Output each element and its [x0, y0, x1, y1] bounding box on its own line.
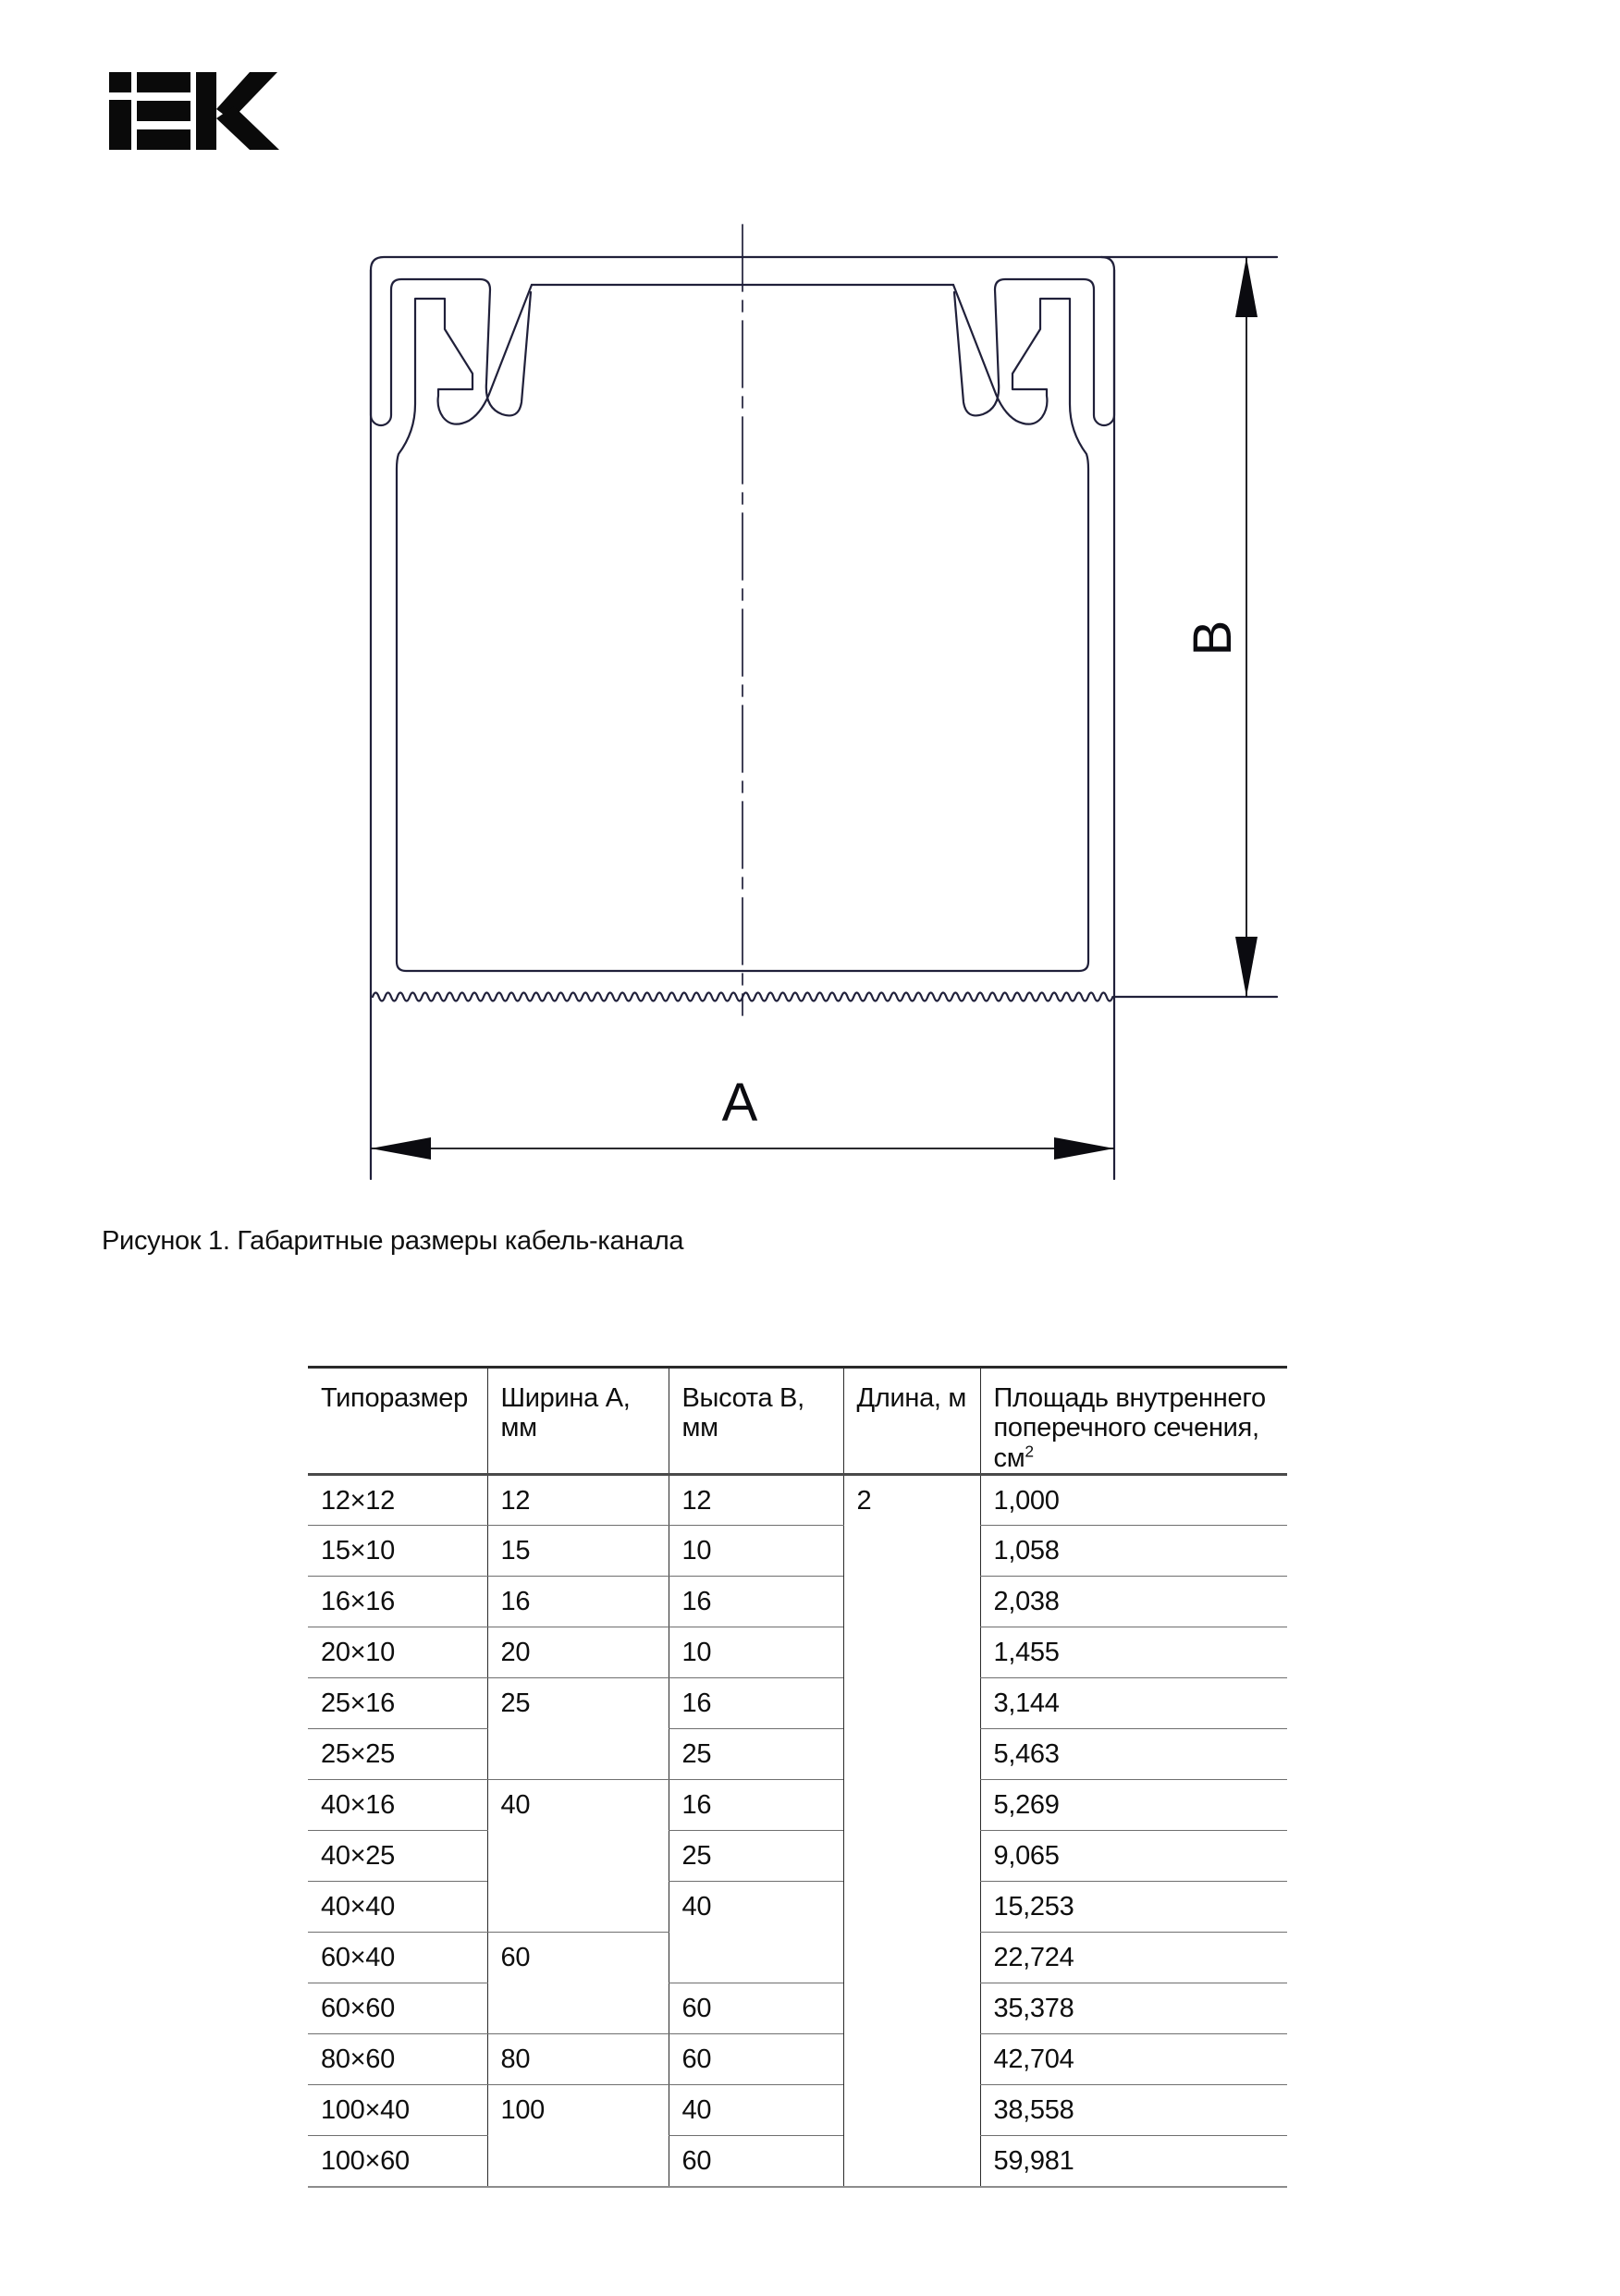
cell-height: 60: [669, 2034, 843, 2085]
cell-size: 100×60: [308, 2136, 487, 2187]
cell-width: 12: [487, 1475, 669, 1526]
document-page: B A Рисунок 1. Габаритные размеры кабель…: [0, 0, 1620, 2296]
table-header-row: Типоразмер Ширина А, мм Высота В, мм Дли…: [308, 1368, 1287, 1475]
table-row: 20×10 20 10 1,455: [308, 1627, 1287, 1678]
dimension-A: A: [371, 1073, 1114, 1160]
cell-size: 25×16: [308, 1678, 487, 1729]
cell-area: 42,704: [980, 2034, 1287, 2085]
cell-area: 5,269: [980, 1780, 1287, 1831]
cell-height: 60: [669, 1983, 843, 2034]
col-header-height: Высота В, мм: [669, 1368, 843, 1475]
table-row: 25×16 25 16 3,144: [308, 1678, 1287, 1729]
cell-area: 5,463: [980, 1729, 1287, 1780]
cell-width: 25: [487, 1678, 669, 1780]
cell-size: 16×16: [308, 1577, 487, 1627]
cell-height: 12: [669, 1475, 843, 1526]
cell-height: 25: [669, 1729, 843, 1780]
figure-caption: Рисунок 1. Габаритные размеры кабель-кан…: [102, 1226, 683, 1257]
cell-length: 2: [843, 1475, 980, 2187]
cell-height: 25: [669, 1831, 843, 1882]
cell-size: 80×60: [308, 2034, 487, 2085]
cell-width: 60: [487, 1933, 669, 2034]
left-clip-assembly: [371, 270, 742, 971]
cell-area: 38,558: [980, 2085, 1287, 2136]
table-row: 40×40 40 15,253: [308, 1882, 1287, 1933]
cell-size: 12×12: [308, 1475, 487, 1526]
cell-size: 40×16: [308, 1780, 487, 1831]
table-row: 16×16 16 16 2,038: [308, 1577, 1287, 1627]
dim-b-arrow-up-icon: [1235, 257, 1258, 317]
dim-a-label: A: [722, 1073, 758, 1133]
dim-a-arrow-right-icon: [1054, 1137, 1114, 1160]
cell-height: 10: [669, 1526, 843, 1577]
cell-height: 40: [669, 2085, 843, 2136]
table-row: 100×40 100 40 38,558: [308, 2085, 1287, 2136]
cell-size: 15×10: [308, 1526, 487, 1577]
area-superscript: 2: [1025, 1442, 1033, 1460]
dim-b-arrow-down-icon: [1235, 937, 1258, 997]
dimensions-table: Типоразмер Ширина А, мм Высота В, мм Дли…: [308, 1366, 1287, 2188]
cell-size: 20×10: [308, 1627, 487, 1678]
dim-b-label: B: [1183, 620, 1243, 657]
cell-width: 16: [487, 1577, 669, 1627]
col-header-length: Длина, м: [843, 1368, 980, 1475]
cell-area: 2,038: [980, 1577, 1287, 1627]
cell-area: 3,144: [980, 1678, 1287, 1729]
cell-area: 59,981: [980, 2136, 1287, 2187]
dimension-B: B: [1183, 257, 1258, 997]
cell-height: 40: [669, 1882, 843, 1983]
cell-size: 40×40: [308, 1882, 487, 1933]
cell-size: 40×25: [308, 1831, 487, 1882]
dim-a-arrow-left-icon: [371, 1137, 431, 1160]
right-clip-assembly: [742, 270, 1114, 971]
cell-height: 60: [669, 2136, 843, 2187]
cell-height: 16: [669, 1678, 843, 1729]
table-row: 60×60 60 35,378: [308, 1983, 1287, 2034]
cell-area: 9,065: [980, 1831, 1287, 1882]
table-row: 12×12 12 12 2 1,000: [308, 1475, 1287, 1526]
cell-height: 16: [669, 1780, 843, 1831]
cell-area: 1,455: [980, 1627, 1287, 1678]
cell-width: 100: [487, 2085, 669, 2187]
cell-size: 25×25: [308, 1729, 487, 1780]
cell-area: 1,000: [980, 1475, 1287, 1526]
cell-size: 100×40: [308, 2085, 487, 2136]
col-header-size: Типоразмер: [308, 1368, 487, 1475]
outer-left-wall-and-top: [371, 257, 1277, 1179]
cell-height: 10: [669, 1627, 843, 1678]
table-row: 40×25 25 9,065: [308, 1831, 1287, 1882]
cell-size: 60×60: [308, 1983, 487, 2034]
cell-width: 80: [487, 2034, 669, 2085]
clip-tooth-and-inner-wall: [742, 285, 1088, 971]
col-header-width: Ширина А, мм: [487, 1368, 669, 1475]
table-row: 80×60 80 60 42,704: [308, 2034, 1287, 2085]
table-row: 25×25 25 5,463: [308, 1729, 1287, 1780]
cell-height: 16: [669, 1577, 843, 1627]
col-header-area: Площадь внутреннего поперечного сечения,…: [980, 1368, 1287, 1475]
table-row: 15×10 15 10 1,058: [308, 1526, 1287, 1577]
cell-width: 40: [487, 1780, 669, 1933]
outer-right-wall: [1101, 257, 1114, 1179]
table-row: 100×60 60 59,981: [308, 2136, 1287, 2187]
cell-width: 15: [487, 1526, 669, 1577]
cable-channel-drawing: B A: [0, 0, 1620, 1211]
cell-area: 1,058: [980, 1526, 1287, 1577]
cell-area: 35,378: [980, 1983, 1287, 2034]
cell-width: 20: [487, 1627, 669, 1678]
table-row: 40×16 40 16 5,269: [308, 1780, 1287, 1831]
cell-area: 15,253: [980, 1882, 1287, 1933]
cell-area: 22,724: [980, 1933, 1287, 1983]
clip-tooth-and-inner-wall: [397, 285, 742, 971]
cell-size: 60×40: [308, 1933, 487, 1983]
